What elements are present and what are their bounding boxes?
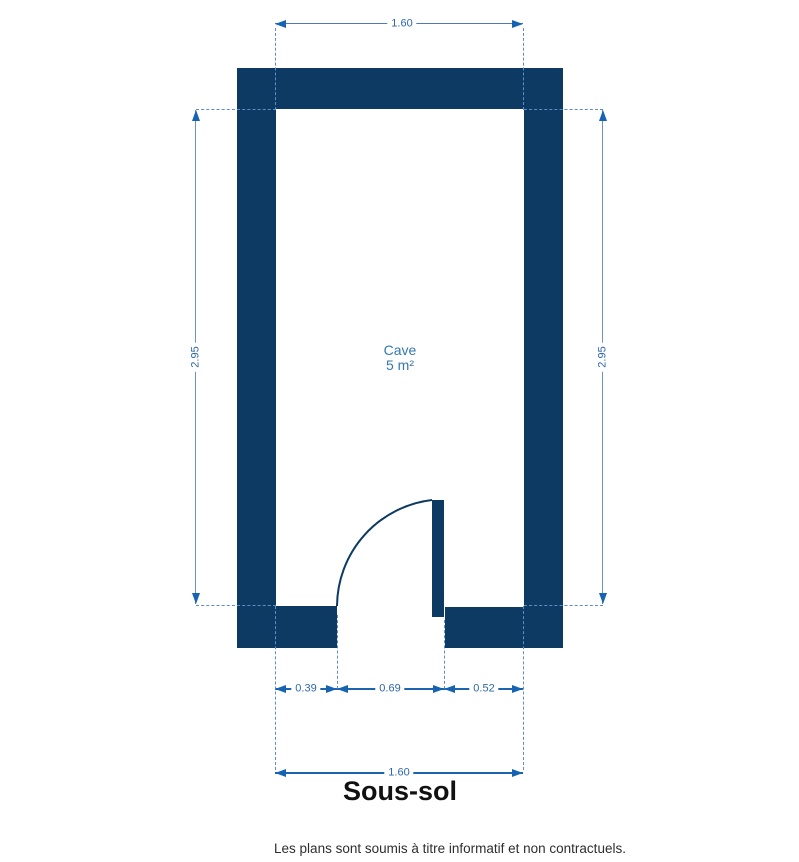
room-name: Cave bbox=[276, 343, 524, 358]
dimension-label-bottom-left: 0.39 bbox=[291, 683, 320, 696]
room-area: 5 m² bbox=[276, 358, 524, 373]
arrow-right-icon bbox=[512, 685, 523, 693]
dimension-label-right-height: 2.95 bbox=[597, 342, 610, 371]
extension-line-right-top bbox=[524, 109, 603, 110]
arrow-left-icon bbox=[275, 20, 286, 28]
extension-line-door-right bbox=[444, 620, 445, 689]
arrow-right-icon bbox=[512, 20, 523, 28]
arrow-up-icon bbox=[599, 110, 607, 121]
arrow-down-icon bbox=[192, 593, 200, 604]
arrow-right-icon bbox=[512, 769, 523, 777]
room-label-block: Cave 5 m² bbox=[276, 343, 524, 373]
dimension-label-bottom-door: 0.69 bbox=[375, 683, 404, 696]
extension-line-top-right bbox=[523, 28, 524, 110]
arrow-left-icon bbox=[444, 685, 455, 693]
dimension-label-left-height: 2.95 bbox=[190, 342, 203, 371]
extension-line-bottom-right bbox=[523, 606, 524, 770]
arrow-left-icon bbox=[337, 685, 348, 693]
extension-line-left-bottom bbox=[196, 605, 276, 606]
disclaimer-text: Les plans sont soumis à titre informatif… bbox=[150, 841, 750, 857]
extension-line-left-top bbox=[196, 109, 276, 110]
dimension-label-top-width: 1.60 bbox=[387, 18, 416, 31]
extension-line-right-bottom bbox=[524, 605, 603, 606]
floor-plan-canvas: 1.60 2.95 2.95 0.39 0.69 0.52 1.60 Cave … bbox=[0, 0, 799, 862]
dimension-label-bottom-right: 0.52 bbox=[469, 683, 498, 696]
arrow-right-icon bbox=[433, 685, 444, 693]
extension-line-door-left bbox=[337, 615, 338, 689]
arrow-right-icon bbox=[326, 685, 337, 693]
door-swing-arc bbox=[0, 0, 799, 862]
arrow-down-icon bbox=[599, 593, 607, 604]
arrow-left-icon bbox=[275, 685, 286, 693]
extension-line-top-left bbox=[275, 28, 276, 110]
arrow-left-icon bbox=[275, 769, 286, 777]
plan-title: Sous-sol bbox=[226, 778, 574, 805]
arrow-up-icon bbox=[192, 110, 200, 121]
